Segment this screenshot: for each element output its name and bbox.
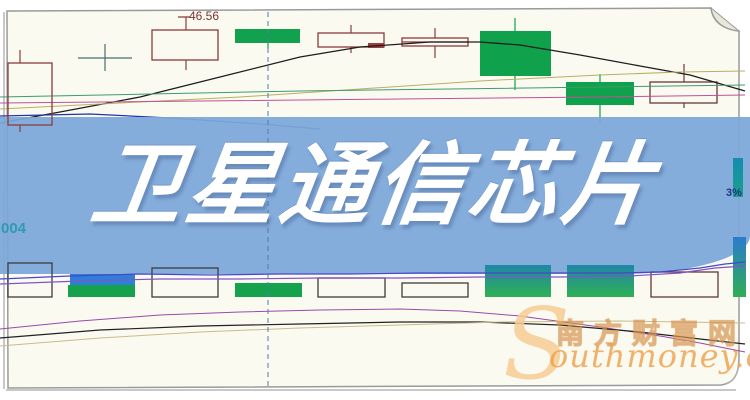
volume-bar — [152, 268, 218, 297]
volume-bar — [651, 272, 718, 297]
volume-bar — [402, 283, 468, 297]
banner-title: 卫星通信芯片 — [0, 139, 750, 234]
price-high-label: 46.56 — [189, 9, 219, 23]
volume-bar — [567, 265, 634, 297]
volume-bar — [8, 263, 52, 297]
stock-chart-promo: 46.56 004 3% 卫星通信芯片 S 南方财富网 outhmoney.co… — [0, 0, 750, 400]
candle-bullish-hollow — [8, 63, 52, 125]
volume-bar — [68, 285, 135, 297]
volume-bar — [318, 278, 385, 297]
volume-bar — [485, 265, 551, 297]
